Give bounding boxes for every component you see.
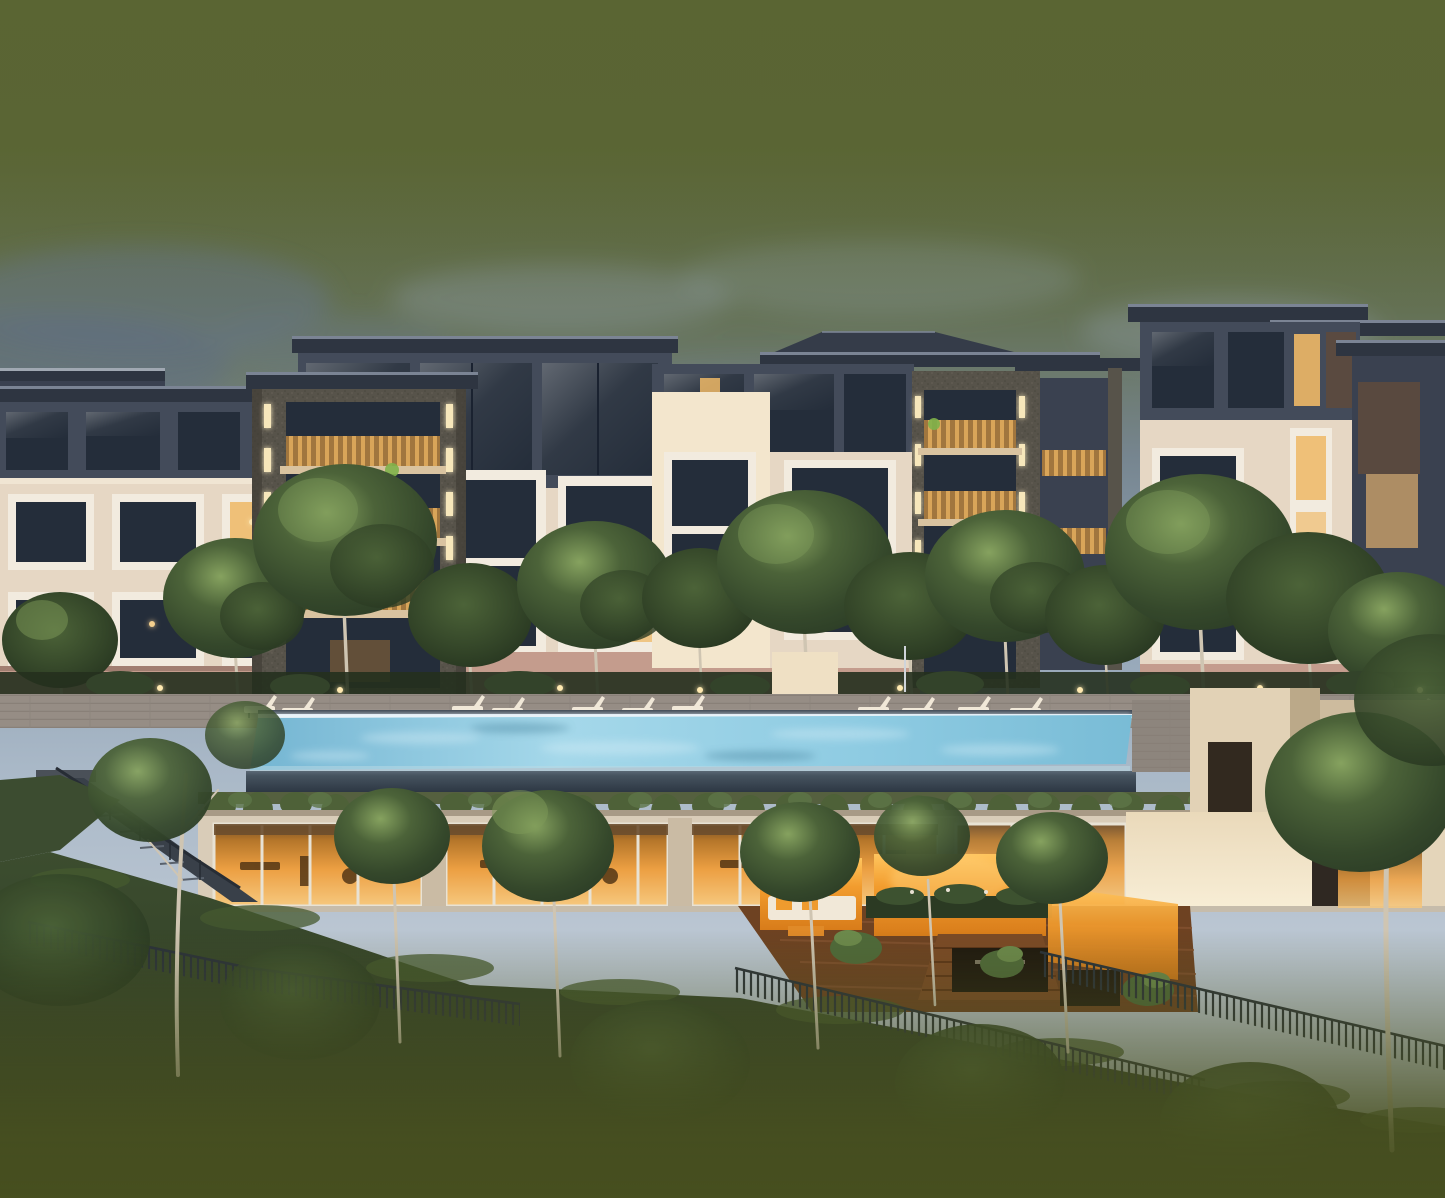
architectural-rendering xyxy=(0,0,1445,1198)
swimming-pool xyxy=(246,710,1136,794)
top-olive-overlay xyxy=(0,0,1445,310)
bottom-olive-overlay xyxy=(0,930,1445,1198)
